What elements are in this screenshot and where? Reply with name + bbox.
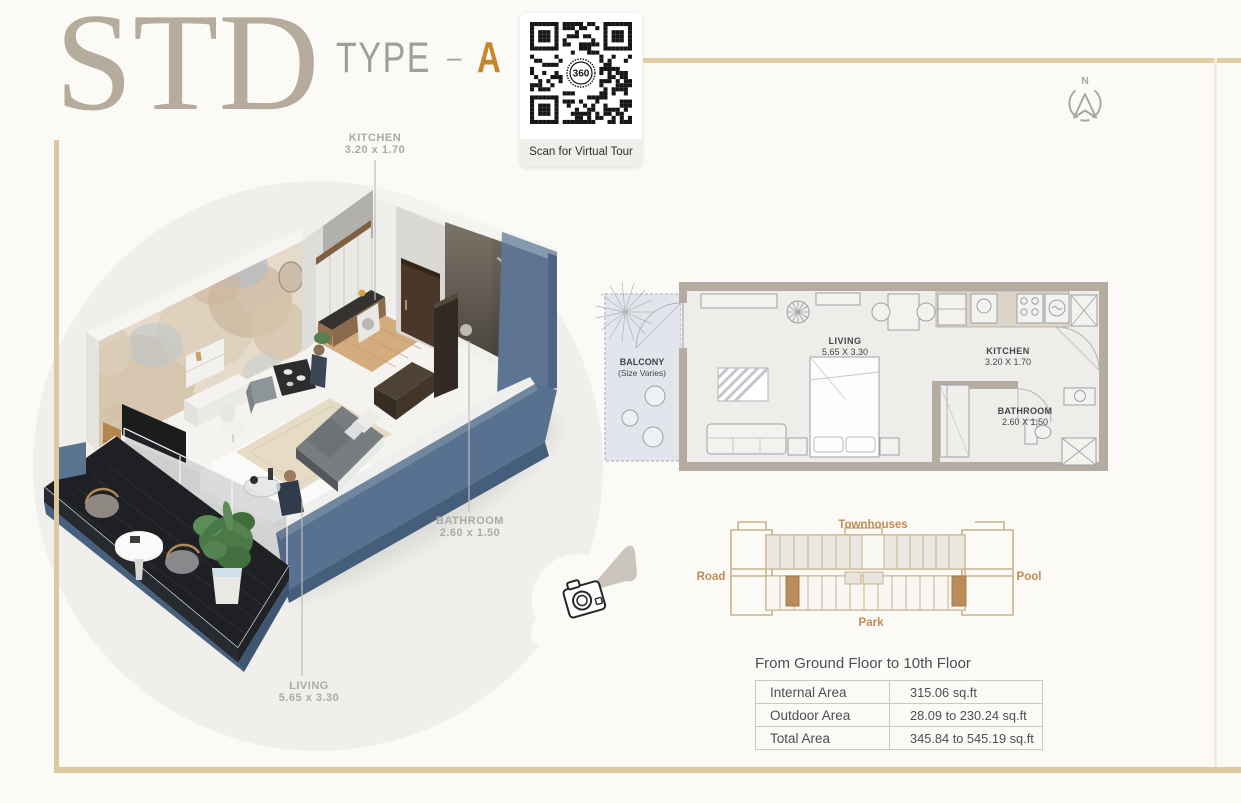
svg-text:N: N <box>1081 75 1089 87</box>
